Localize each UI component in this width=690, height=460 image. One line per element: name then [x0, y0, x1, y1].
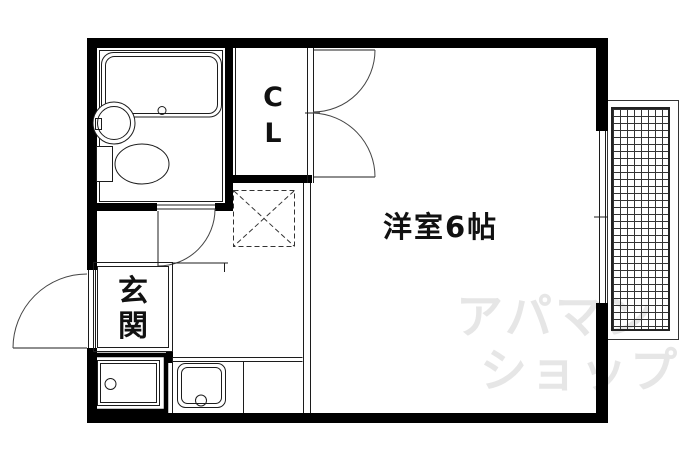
balcony-window	[594, 131, 608, 303]
entrance-door-threshold	[89, 270, 96, 348]
closet-door-arc-bottom	[313, 113, 375, 177]
bathroom-door	[157, 205, 215, 266]
wall-right-upper	[596, 38, 608, 131]
hall-step-line	[173, 263, 229, 272]
entrance-label: 玄関	[116, 274, 150, 344]
closet-door-frame	[308, 48, 314, 183]
wall-top	[87, 38, 608, 48]
toilet-bowl	[115, 144, 169, 184]
bathroom-door-threshold	[157, 205, 215, 209]
washing-pan-drain	[105, 379, 116, 390]
appliance-space	[234, 191, 295, 247]
washing-machine-pan	[90, 355, 166, 411]
wall-right-lower	[596, 303, 608, 423]
bathroom-door-arc	[158, 209, 215, 266]
floorplan-drawing	[0, 0, 690, 460]
wall-bath-bottom-right	[215, 203, 233, 211]
closet-door-arc-top	[313, 50, 375, 112]
kitchen-sink	[178, 364, 226, 408]
toilet-tank	[97, 147, 113, 182]
partition-wall	[304, 183, 311, 413]
kitchen-sink-basin	[182, 368, 222, 404]
floorplan-canvas: アパマン ショップ	[0, 0, 690, 460]
kitchen-sink-drain	[196, 395, 207, 406]
main-room-label: 洋室6帖	[383, 204, 539, 246]
wall-bottom	[87, 413, 608, 423]
closet-label: CL	[257, 80, 289, 152]
wall-bath-closet-divider	[225, 48, 233, 211]
bathroom-sink	[93, 102, 135, 144]
wall-closet-bottom	[225, 175, 312, 183]
washing-pan-inner	[101, 364, 157, 403]
appliance-space-cross	[234, 191, 294, 246]
wall-bath-bottom-left	[87, 203, 157, 211]
bathroom	[93, 51, 223, 202]
balcony-outline	[608, 101, 679, 340]
entrance-door-arc	[13, 274, 87, 348]
wall-left-upper	[87, 38, 97, 270]
counter-top-edge	[173, 358, 303, 362]
kitchen-counter	[173, 358, 303, 414]
washing-pan-outer	[98, 361, 160, 406]
